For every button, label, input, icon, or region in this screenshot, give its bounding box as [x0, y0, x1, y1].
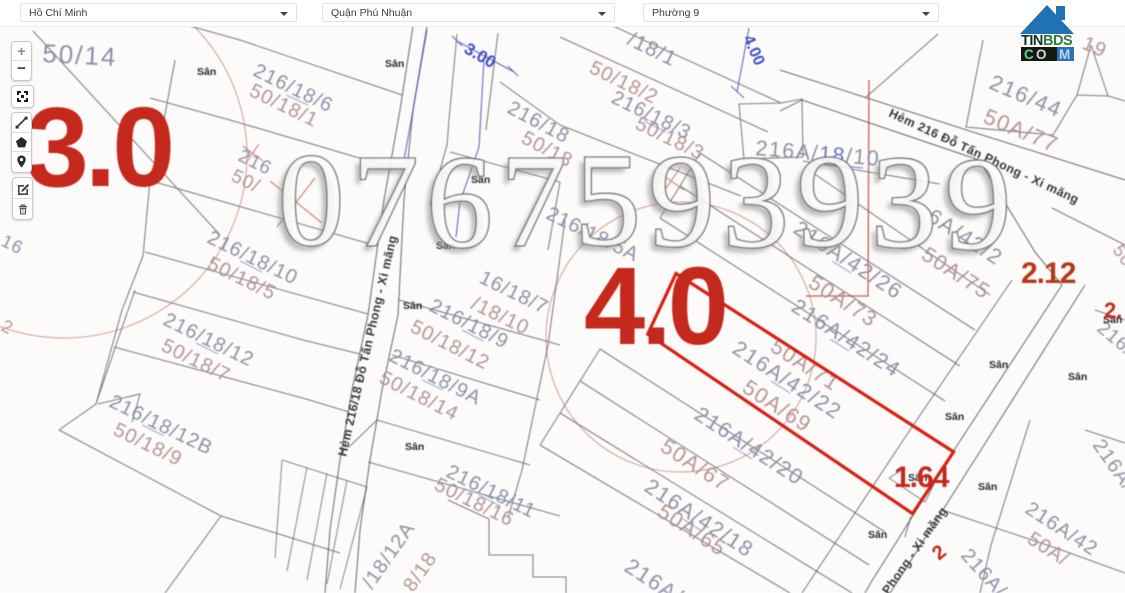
svg-text:O: O — [1036, 47, 1047, 62]
svg-text:2.12: 2.12 — [1021, 257, 1076, 290]
svg-text:Sân: Sân — [1068, 371, 1087, 383]
svg-text:3.0: 3.0 — [26, 84, 171, 210]
svg-text:Sân: Sân — [989, 359, 1008, 371]
svg-text:Sân: Sân — [197, 66, 216, 78]
svg-text:4.0: 4.0 — [584, 245, 725, 368]
svg-text:50/14: 50/14 — [42, 38, 119, 72]
svg-text:C: C — [1024, 47, 1034, 62]
svg-text:Sân: Sân — [405, 441, 424, 453]
svg-text:Sân: Sân — [945, 411, 964, 423]
svg-text:Sân: Sân — [978, 481, 997, 493]
svg-text:1.64: 1.64 — [894, 461, 950, 494]
svg-text:Sân: Sân — [385, 58, 404, 70]
svg-text:Sân: Sân — [403, 300, 422, 312]
svg-text:M: M — [1059, 47, 1070, 62]
svg-text:Sân: Sân — [868, 529, 887, 541]
svg-text:2.: 2. — [1104, 298, 1122, 323]
